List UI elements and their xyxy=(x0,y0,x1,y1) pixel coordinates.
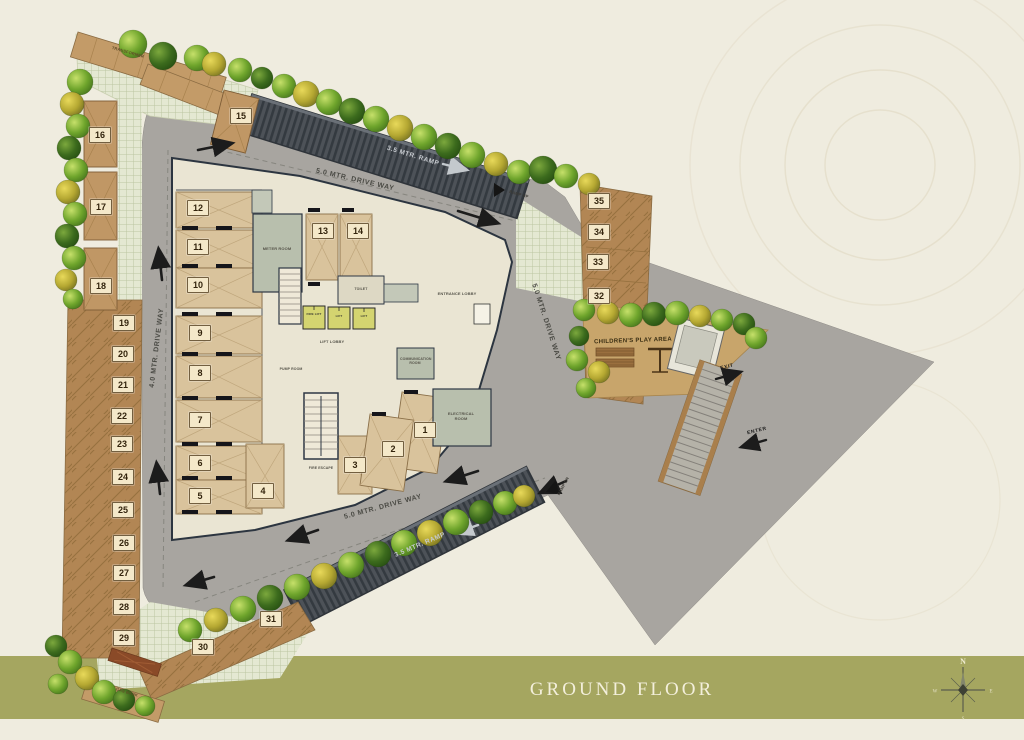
toilet-label: TOILET xyxy=(350,287,372,291)
small-utility-room xyxy=(252,190,272,213)
lift-label-1: LIFT xyxy=(331,315,347,318)
tree-icon xyxy=(435,133,461,159)
lift-lobby-label: LIFT LOBBY xyxy=(317,340,347,345)
meter-room-label: METER ROOM xyxy=(262,247,292,252)
parking-spot-33: 33 xyxy=(587,254,609,270)
tree-icon xyxy=(745,327,767,349)
tree-icon xyxy=(64,158,88,182)
parking-spot-4: 4 xyxy=(252,483,274,499)
tree-icon xyxy=(339,98,365,124)
parking-spot-25: 25 xyxy=(112,502,134,518)
tree-icon xyxy=(469,500,493,524)
tree-icon xyxy=(459,142,485,168)
parking-spot-16: 16 xyxy=(89,127,111,143)
parking-spot-17: 17 xyxy=(90,199,112,215)
parking-spot-34: 34 xyxy=(588,224,610,240)
parking-spot-32: 32 xyxy=(588,288,610,304)
tree-icon xyxy=(55,224,79,248)
fire-lift-label: FIRE LIFT xyxy=(306,313,322,316)
tree-icon xyxy=(513,485,535,507)
tree-icon xyxy=(251,67,273,89)
tree-icon xyxy=(411,124,437,150)
parking-spot-2: 2 xyxy=(382,441,404,457)
tree-icon xyxy=(554,164,578,188)
tree-icon xyxy=(311,563,337,589)
compass-south: S xyxy=(962,717,965,722)
fire-escape-label: FIRE ESCAPE xyxy=(308,466,334,470)
tree-icon xyxy=(293,81,319,107)
parking-spot-7: 7 xyxy=(189,412,211,428)
entrance-lobby-label: ENTRANCE LOBBY xyxy=(435,292,479,297)
parking-spot-21: 21 xyxy=(112,377,134,393)
tree-icon xyxy=(711,309,733,331)
tree-icon xyxy=(665,301,689,325)
parking-spot-19: 19 xyxy=(113,315,135,331)
tree-icon xyxy=(60,92,84,116)
parking-spot-28: 28 xyxy=(113,599,135,615)
parking-spot-31: 31 xyxy=(260,611,282,627)
parking-spot-24: 24 xyxy=(112,469,134,485)
parking-spot-1: 1 xyxy=(414,422,436,438)
parking-spot-27: 27 xyxy=(113,565,135,581)
stairs-main xyxy=(279,268,301,324)
tree-icon xyxy=(507,160,531,184)
parking-spot-14: 14 xyxy=(347,223,369,239)
tree-icon xyxy=(338,552,364,578)
parking-spot-20: 20 xyxy=(112,346,134,362)
tree-icon xyxy=(529,156,557,184)
compass-north: N xyxy=(960,657,966,666)
parking-spot-5: 5 xyxy=(189,488,211,504)
tree-icon xyxy=(316,89,342,115)
tree-icon xyxy=(92,680,116,704)
tree-icon xyxy=(228,58,252,82)
parking-spot-6: 6 xyxy=(189,455,211,471)
site-plan-canvas: N E S W 5.0 MTR. DRIVE WAY 4.0 MTR. DRIV… xyxy=(0,0,1024,740)
tree-icon xyxy=(63,202,87,226)
tree-icon xyxy=(689,305,711,327)
parking-spot-26: 26 xyxy=(113,535,135,551)
tree-icon xyxy=(66,114,90,138)
parking-spot-22: 22 xyxy=(111,408,133,424)
tree-icon xyxy=(57,136,81,160)
tree-icon xyxy=(619,303,643,327)
tree-icon xyxy=(56,180,80,204)
page-title: GROUND FLOOR xyxy=(530,679,714,701)
parking-spot-23: 23 xyxy=(111,436,133,452)
tree-icon xyxy=(576,378,596,398)
parking-spot-13: 13 xyxy=(312,223,334,239)
lift-label-2: LIFT xyxy=(356,315,372,318)
parking-spot-3: 3 xyxy=(344,457,366,473)
parking-spot-30: 30 xyxy=(192,639,214,655)
tree-icon xyxy=(284,574,310,600)
tree-icon xyxy=(67,69,93,95)
tree-icon xyxy=(48,674,68,694)
compass-east: E xyxy=(989,690,992,695)
parking-spot-29: 29 xyxy=(113,630,135,646)
stairs-fire-escape xyxy=(304,393,338,459)
tree-icon xyxy=(363,106,389,132)
communication-room-label: COMMUNICATION ROOM xyxy=(400,357,430,365)
compass-west: W xyxy=(933,690,938,695)
tree-icon xyxy=(135,696,155,716)
tree-icon xyxy=(149,42,177,70)
parking-spot-18: 18 xyxy=(90,278,112,294)
tree-icon xyxy=(272,74,296,98)
pump-room-label: PUMP ROOM xyxy=(279,367,303,371)
tree-icon xyxy=(62,246,86,270)
tree-icon xyxy=(578,173,600,195)
parking-spot-9: 9 xyxy=(189,325,211,341)
tree-icon xyxy=(202,52,226,76)
tree-icon xyxy=(597,302,619,324)
tree-icon xyxy=(566,349,588,371)
tree-icon xyxy=(257,585,283,611)
tree-icon xyxy=(387,115,413,141)
electrical-room-label: ELECTRICAL ROOM xyxy=(444,412,478,421)
parking-spot-11: 11 xyxy=(187,239,209,255)
parking-spot-15: 15 xyxy=(230,108,252,124)
parking-spot-12: 12 xyxy=(187,200,209,216)
tree-icon xyxy=(204,608,228,632)
tree-icon xyxy=(569,326,589,346)
entrance-porch xyxy=(474,304,490,324)
tree-icon xyxy=(443,509,469,535)
tree-icon xyxy=(642,302,666,326)
tree-icon xyxy=(63,289,83,309)
tree-icon xyxy=(55,269,77,291)
parking-spot-10: 10 xyxy=(187,277,209,293)
toilet-block-2 xyxy=(384,284,418,302)
tree-icon xyxy=(230,596,256,622)
parking-spot-8: 8 xyxy=(189,365,211,381)
parking-spot-35: 35 xyxy=(588,193,610,209)
tree-icon xyxy=(484,152,508,176)
tree-icon xyxy=(365,541,391,567)
